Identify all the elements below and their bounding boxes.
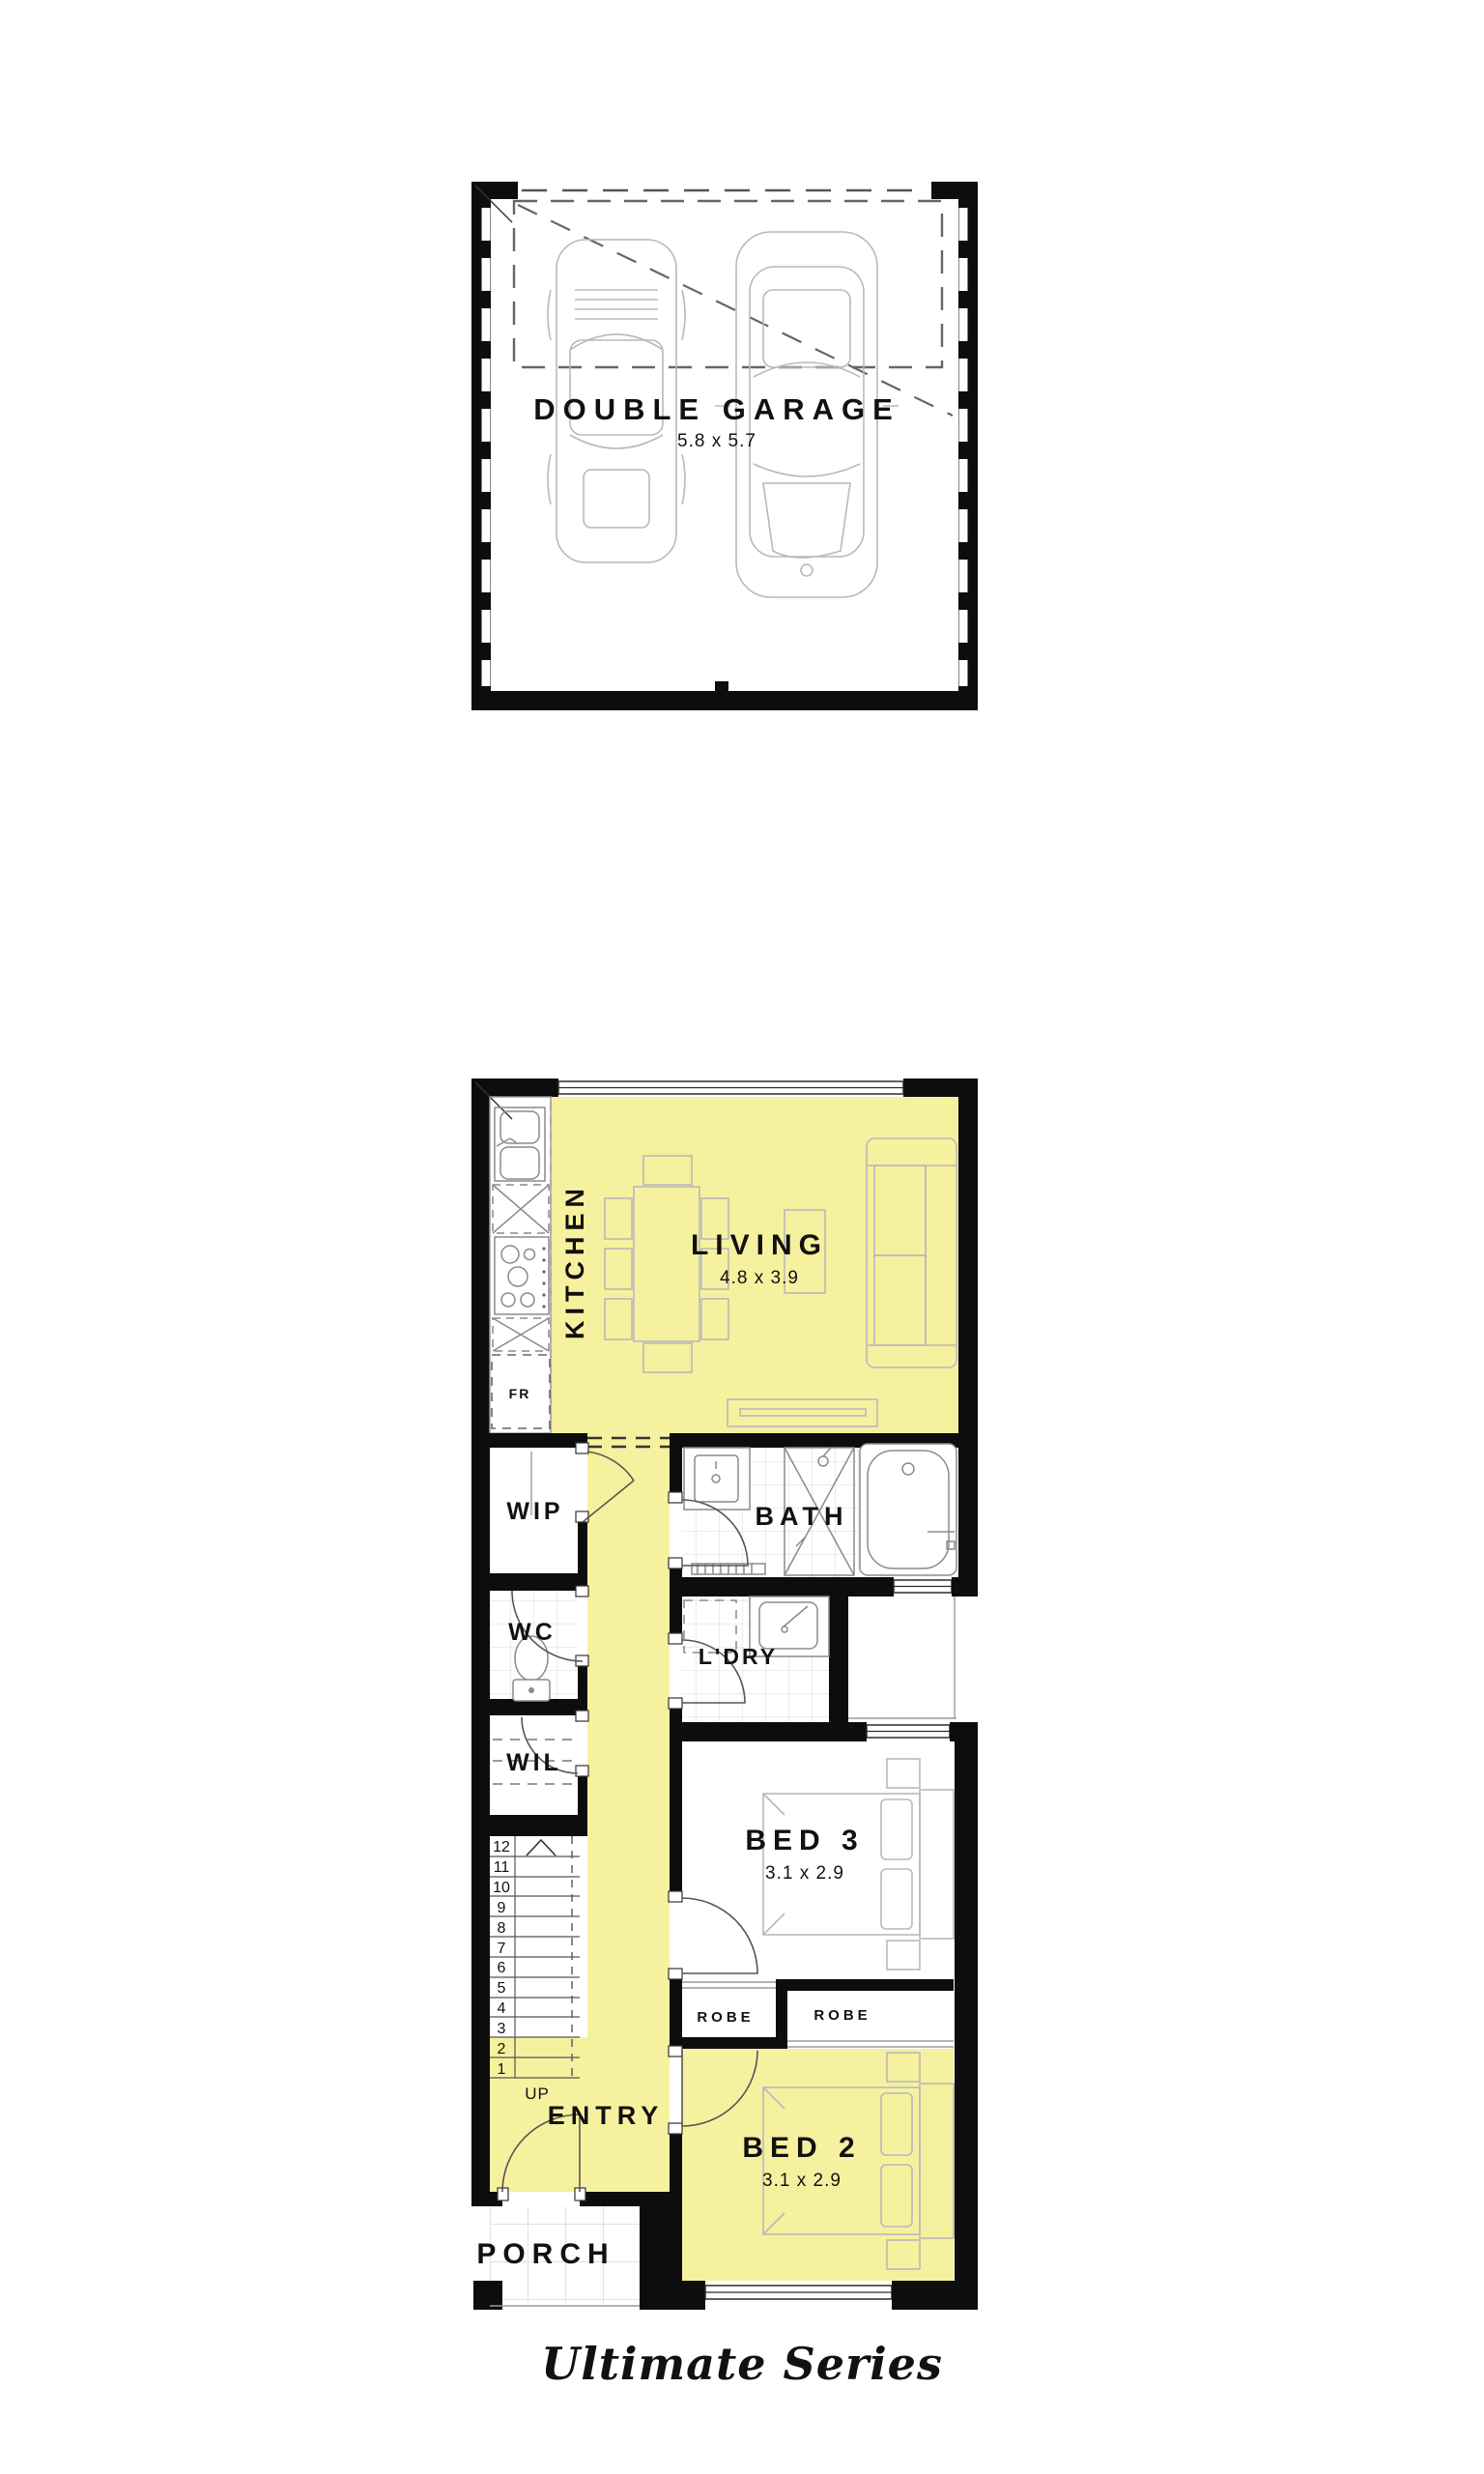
stair-tread-number: 6 (498, 1960, 506, 1976)
bed3-door-arc (682, 1898, 757, 1973)
stair-tread-number: 9 (498, 1900, 506, 1916)
fridge-space: FR (492, 1355, 550, 1428)
living-kitchen-highlight (551, 1097, 958, 1433)
door-jamb (669, 1969, 682, 1979)
door-jamb (576, 1443, 588, 1453)
left-wall (471, 1079, 490, 2206)
kitchen-bench: FR (490, 1097, 551, 1433)
garage-dimensions: 5.8 x 5.7 (677, 431, 756, 451)
garage-label: DOUBLE GARAGE (533, 392, 900, 426)
wip-wc-wall (471, 1573, 587, 1591)
stair-tread-number: 5 (498, 1980, 506, 1997)
stair-tread-number: 12 (493, 1839, 510, 1855)
mid-wall (670, 1563, 682, 1638)
toilet-icon (513, 1636, 550, 1701)
garage-plan: DOUBLE GARAGE 5.8 x 5.7 (471, 182, 978, 710)
door-jamb (576, 1586, 588, 1597)
garage-door-swing (518, 205, 953, 416)
door-jamb (576, 1766, 588, 1776)
wip-label: WIP (506, 1498, 563, 1525)
stair-tread-number: 8 (498, 1920, 506, 1937)
wip-top-wall (471, 1433, 587, 1448)
right-wall-upper (958, 1079, 978, 1597)
bed3-label: BED 3 (745, 1825, 864, 1856)
ground-floor-plan: FR LIVING 4.8 (471, 1079, 978, 2310)
bed2-bottom-wall (892, 2281, 978, 2310)
bathtub-icon (860, 1444, 956, 1575)
robe-bed2-label: ROBE (813, 2007, 870, 2024)
bath-bottom-wall (682, 1577, 894, 1597)
stair-tread-number: 4 (498, 2000, 506, 2017)
bed2-highlight (682, 2049, 954, 2281)
bed3-top-wall (670, 1722, 867, 1741)
right-wall-lower (955, 1722, 978, 2310)
living-label: LIVING (691, 1229, 828, 1261)
robe-partition-wall (776, 1979, 787, 2049)
garage-top-left-wall (471, 182, 518, 199)
wil-stairs-wall (471, 1815, 587, 1836)
wc-label: WC (508, 1619, 556, 1646)
wip-right-wall (578, 1515, 587, 1573)
robe1-bottom-wall (670, 2037, 776, 2049)
wil-right-wall (578, 1770, 587, 1815)
bath-corner-wall (952, 1577, 978, 1597)
series-brand-label: Ultimate Series (541, 2338, 943, 2390)
stair-tread-number: 2 (498, 2041, 506, 2057)
dishwasher-provision (493, 1185, 549, 1233)
stair-tread-number: 10 (493, 1880, 510, 1896)
bed2-dimensions: 3.1 x 2.9 (762, 2171, 842, 2191)
door-jamb (669, 1891, 682, 1902)
stair-tread-number: 3 (498, 2021, 506, 2037)
door-jamb (669, 1558, 682, 1568)
living-dimensions: 4.8 x 3.9 (720, 1268, 799, 1288)
stair-up-arrow (527, 1840, 556, 1855)
hall-highlight (587, 1433, 670, 2206)
laundry-right-wall (829, 1597, 848, 1722)
fridge-label: FR (509, 1386, 531, 1401)
door-jamb (669, 1633, 682, 1644)
porch-label: PORCH (476, 2238, 614, 2270)
garage-bottom-wall (471, 691, 978, 710)
stair-tread-number: 11 (494, 1859, 510, 1876)
bath-label: BATH (756, 1502, 849, 1531)
pantry-provision (493, 1318, 549, 1351)
laundry-label: L'DRY (699, 1644, 778, 1669)
robe-bed3-label: ROBE (697, 2009, 754, 2026)
door-jamb (669, 1698, 682, 1709)
bed3-corner-wall (950, 1722, 978, 1741)
bed2-bottom-wall (682, 2281, 705, 2310)
kitchen-sink-icon (495, 1108, 545, 1181)
stair-tread-number: 1 (498, 2061, 506, 2078)
garage-bottom-nib (715, 681, 728, 691)
stair-tread-number: 7 (498, 1941, 506, 1957)
door-jamb (576, 1711, 588, 1721)
robe2-top-wall (787, 1979, 954, 1991)
door-jamb (669, 2046, 682, 2057)
floor-plan-page: DOUBLE GARAGE 5.8 x 5.7 (0, 0, 1484, 2474)
door-jamb (576, 1511, 588, 1522)
floor-plan-canvas: DOUBLE GARAGE 5.8 x 5.7 (0, 0, 1484, 2474)
stairs-up-label: UP (525, 2085, 550, 2103)
bed3-dimensions: 3.1 x 2.9 (765, 1863, 844, 1884)
bed2-label: BED 2 (742, 2132, 861, 2164)
door-jamb (669, 2123, 682, 2134)
entry-label: ENTRY (548, 2101, 665, 2130)
porch-right-wall (640, 2192, 682, 2310)
garage-top-right-wall (931, 182, 978, 199)
door-jamb (669, 1492, 682, 1503)
wil-label: WIL (506, 1749, 562, 1776)
cooktop-icon (495, 1237, 549, 1314)
kitchen-label: KITCHEN (560, 1183, 589, 1339)
